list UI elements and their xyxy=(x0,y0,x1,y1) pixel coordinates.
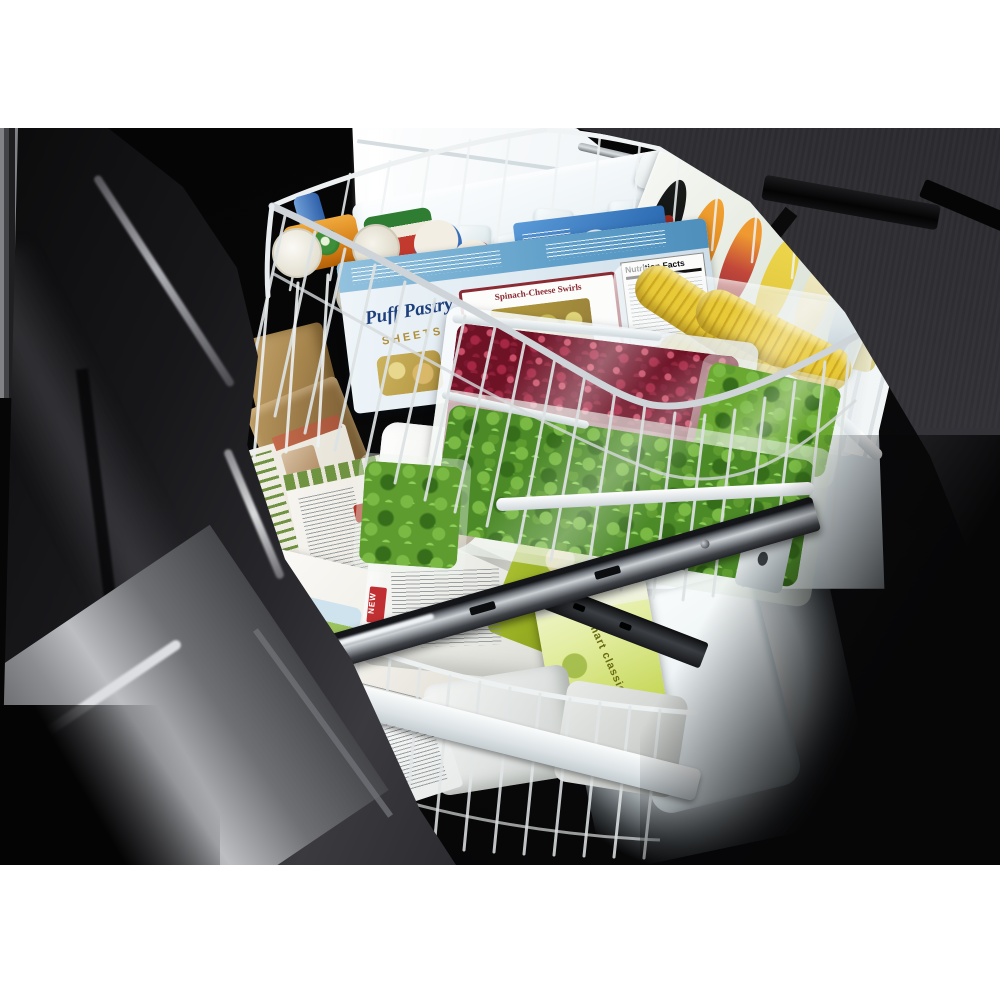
page: Amy's IA ES NEW xyxy=(0,0,1000,1000)
basket-front-rim xyxy=(272,206,856,406)
rail-hole xyxy=(572,603,585,613)
freezer-photo: Amy's IA ES NEW xyxy=(0,128,1000,865)
bottom-left-shadow xyxy=(0,705,220,865)
rail-slot xyxy=(469,601,496,616)
rail-slot xyxy=(594,565,621,580)
rail-hole xyxy=(619,621,632,631)
bottom-right-shadow xyxy=(640,435,1000,865)
